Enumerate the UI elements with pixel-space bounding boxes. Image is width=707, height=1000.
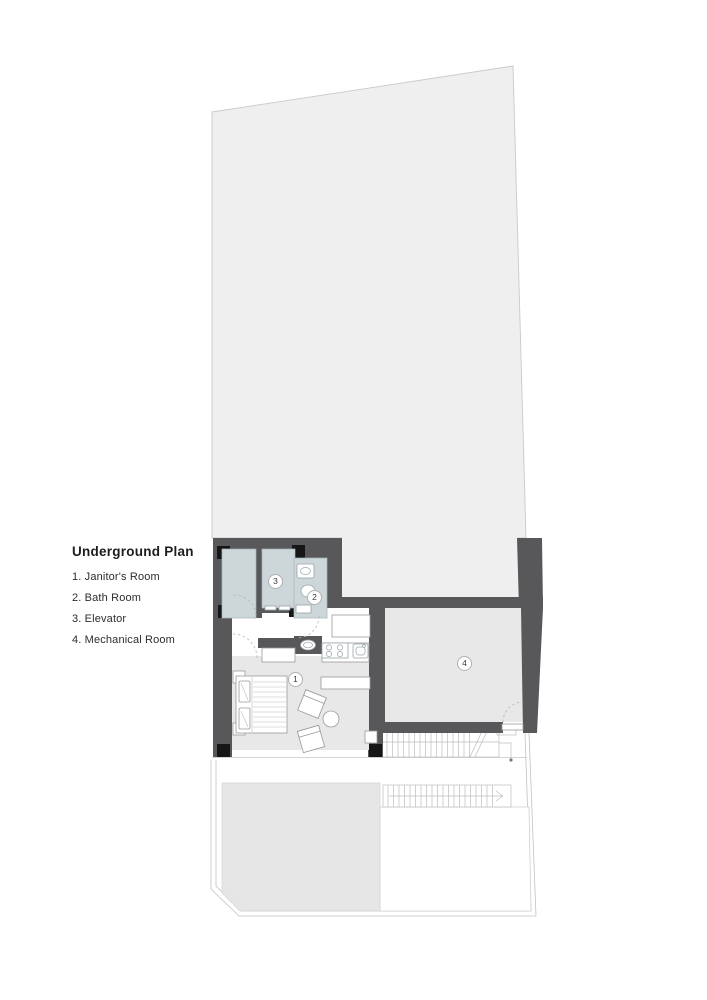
counter	[262, 648, 295, 662]
coffee-table	[323, 711, 339, 727]
shower-cell	[222, 549, 256, 618]
room-marker-mechanical-room: 4	[457, 656, 472, 671]
legend-item-mechanical-room: 4. Mechanical Room	[72, 635, 222, 646]
elevator-door-icon	[265, 606, 276, 610]
legend-item-janitors-room: 1. Janitor's Room	[72, 572, 222, 583]
stove-icon	[322, 643, 348, 658]
room-marker-janitors-room: 1	[288, 672, 303, 687]
closet	[365, 731, 377, 743]
bed	[236, 676, 287, 733]
legend-item-bath-room: 2. Bath Room	[72, 593, 222, 604]
lot-parcel	[212, 66, 526, 600]
cabinet	[332, 615, 370, 637]
door-leaf	[502, 724, 523, 730]
room-marker-bath-room: 2	[307, 590, 322, 605]
toilet-icon	[301, 640, 316, 650]
page-title: Underground Plan	[72, 544, 222, 559]
floor-plan-drawing	[0, 0, 707, 1000]
sink-icon	[353, 644, 368, 658]
desk	[321, 677, 370, 689]
elevator-door-icon	[279, 606, 290, 610]
bath-shelf-icon	[296, 605, 311, 613]
stairs-lower	[383, 785, 511, 807]
legend-item-elevator: 3. Elevator	[72, 614, 222, 625]
mechanical-room-floor	[385, 608, 524, 722]
legend: Underground Plan 1. Janitor's Room 2. Ba…	[72, 544, 222, 656]
washing-machine-icon	[297, 564, 314, 578]
room-marker-elevator: 3	[268, 574, 283, 589]
door-arc	[233, 634, 257, 658]
door-arc	[297, 616, 319, 638]
